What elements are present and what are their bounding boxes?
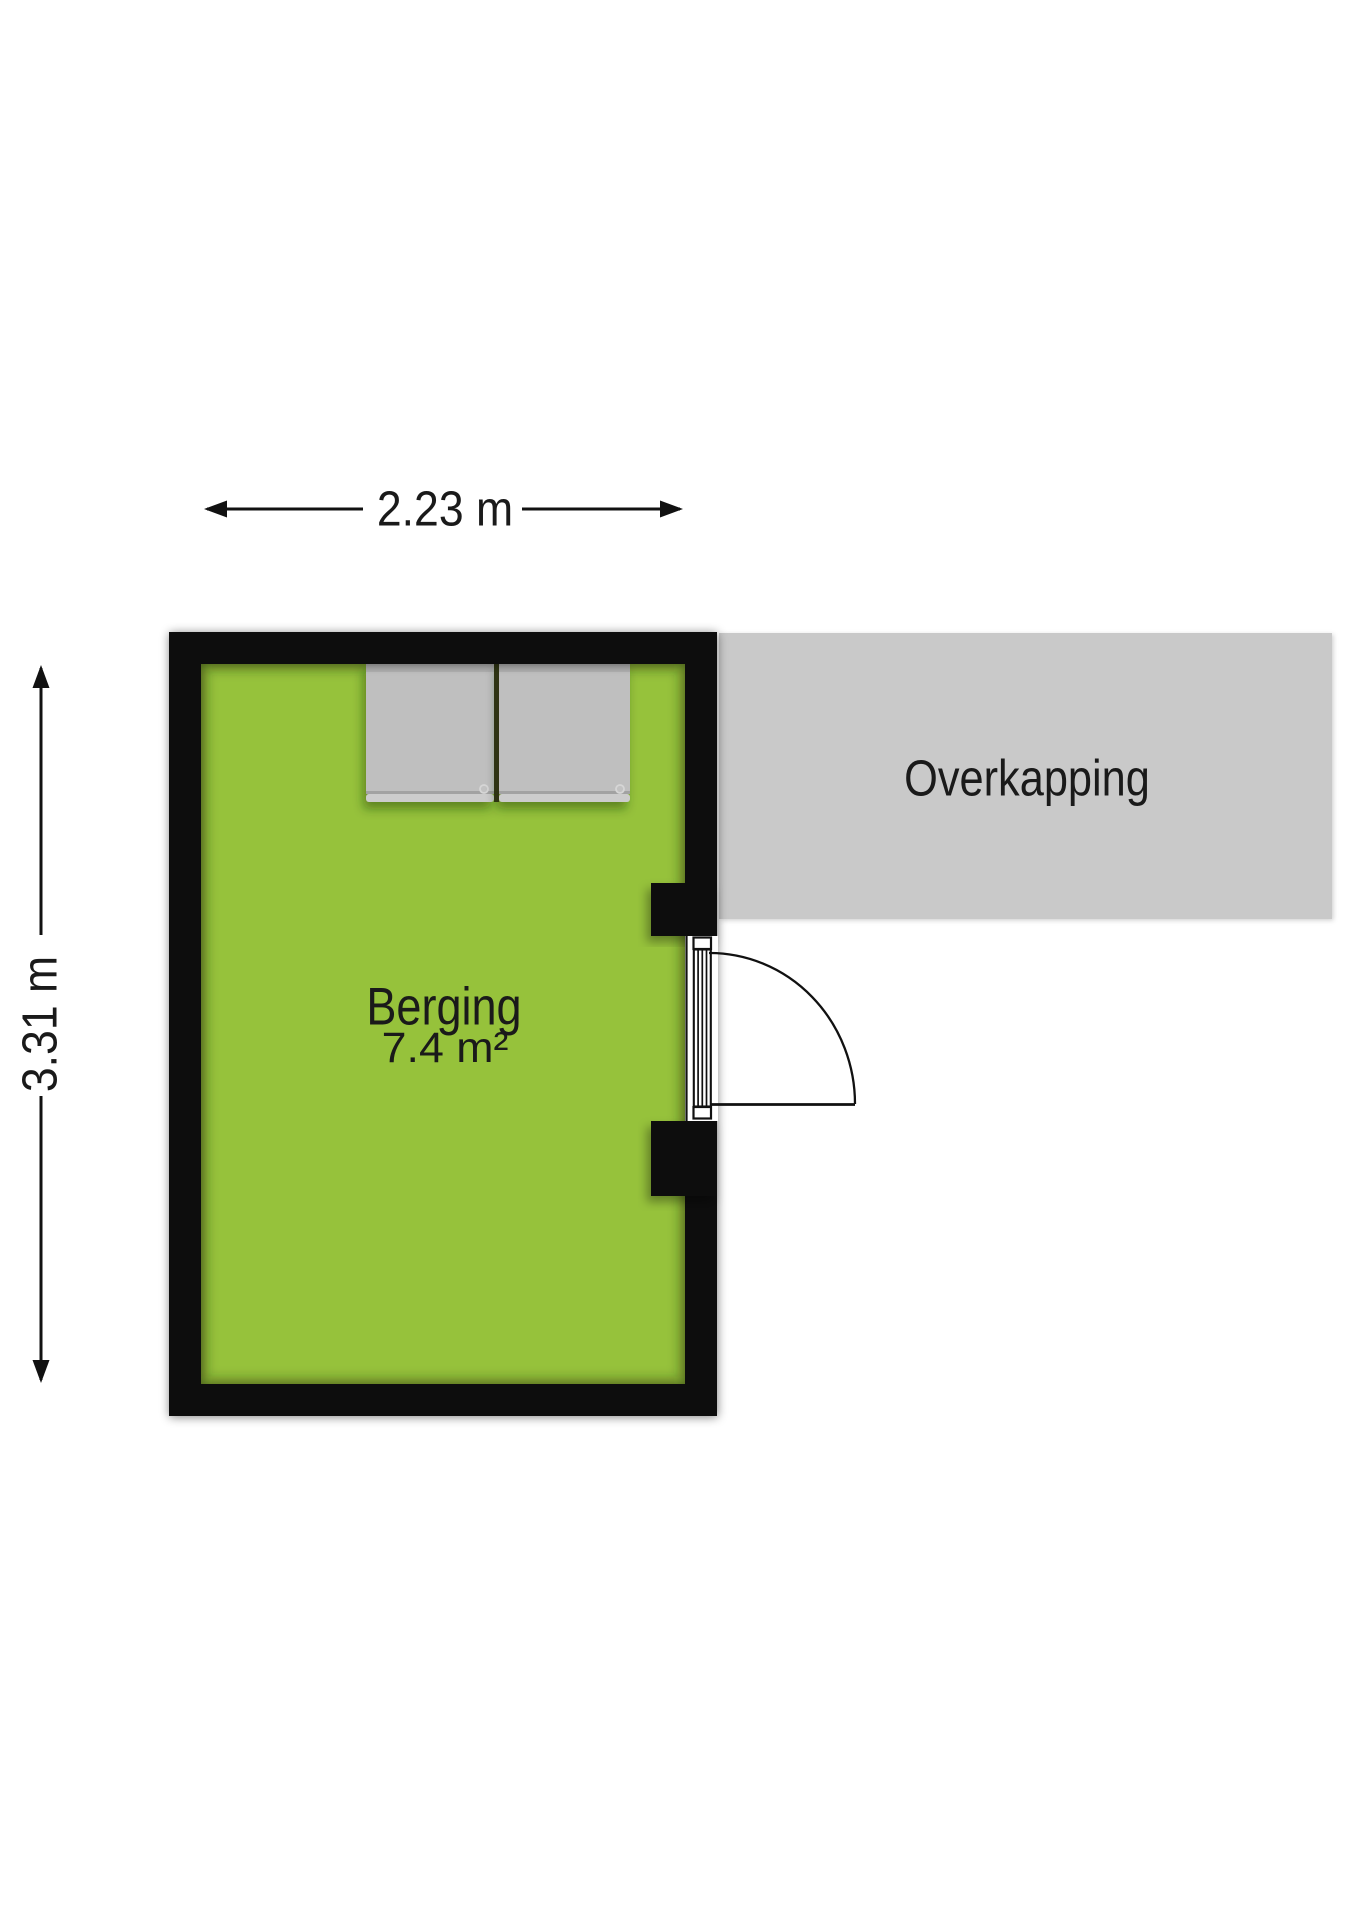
svg-text:2.23 m: 2.23 m: [377, 480, 513, 536]
svg-text:Overkapping: Overkapping: [904, 750, 1150, 807]
svg-text:3.31 m: 3.31 m: [11, 956, 67, 1092]
svg-text:7.4 m²: 7.4 m²: [382, 1024, 509, 1072]
